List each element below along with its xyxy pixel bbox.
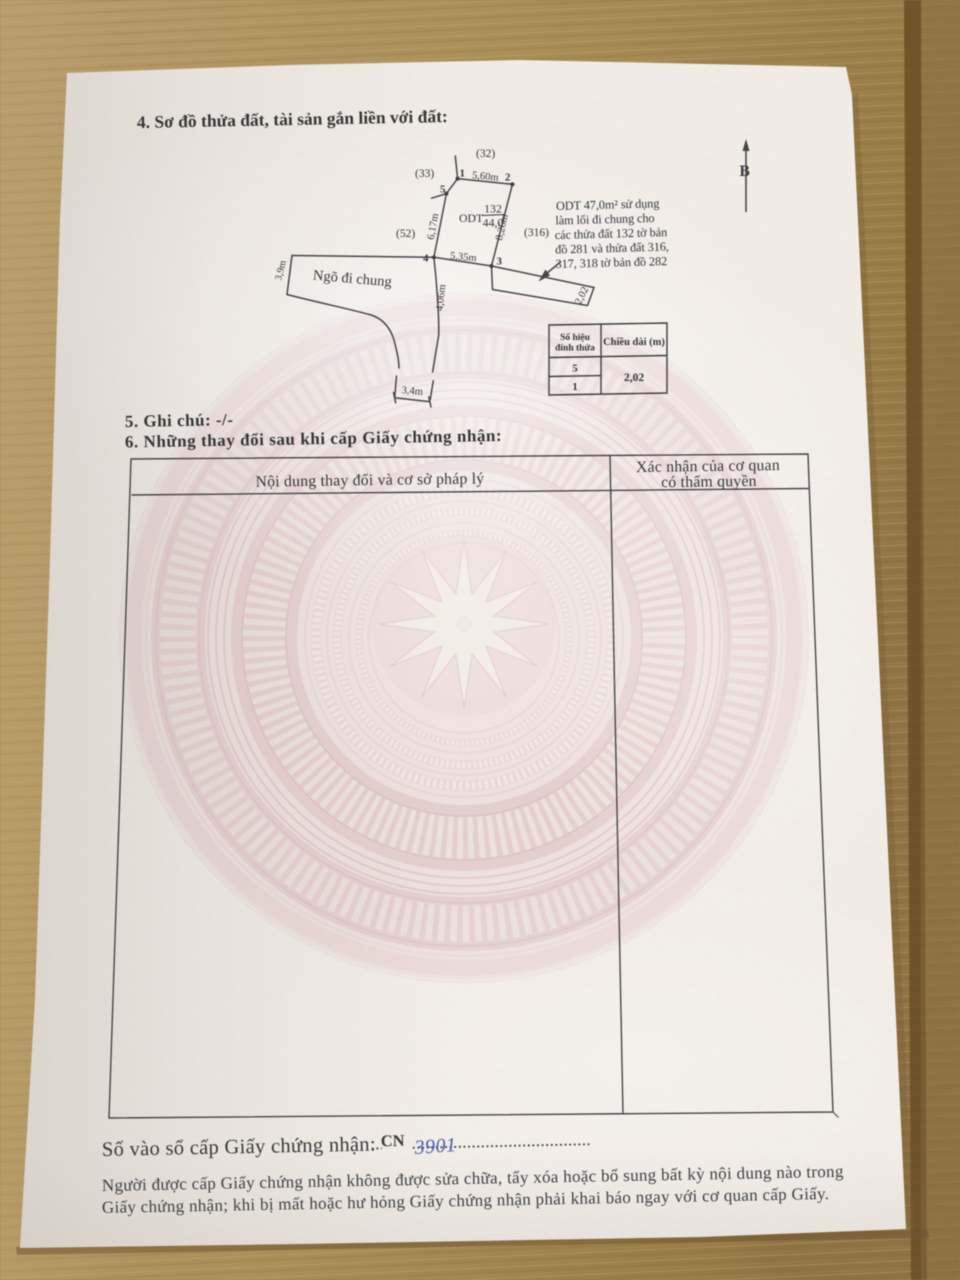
svg-text:1: 1 [460, 168, 466, 180]
svg-text:3: 3 [497, 256, 503, 268]
svg-text:ODT: ODT [459, 211, 484, 225]
svg-text:5. Ghi chú: -/-: 5. Ghi chú: -/- [125, 410, 234, 431]
svg-text:3,4m: 3,4m [401, 385, 423, 398]
svg-text:44,0: 44,0 [483, 216, 504, 230]
svg-text:có thẩm quyền: có thẩm quyền [661, 473, 757, 491]
svg-text:1: 1 [572, 381, 578, 393]
svg-text:(316): (316) [524, 227, 549, 239]
svg-text:2: 2 [505, 172, 511, 184]
svg-text:Nội dung thay đổi và cơ sở phá: Nội dung thay đổi và cơ sở pháp lý [255, 470, 484, 490]
svg-text:4: 4 [423, 253, 429, 265]
svg-text:(52): (52) [396, 228, 415, 240]
svg-text:317, 318 tờ bản đồ 282: 317, 318 tờ bản đồ 282 [555, 254, 667, 271]
svg-text:đỉnh thửa: đỉnh thửa [555, 344, 595, 354]
svg-text:(33): (33) [415, 168, 434, 180]
svg-text:5: 5 [440, 184, 446, 196]
svg-text:5: 5 [572, 363, 578, 375]
svg-text:3901: 3901 [413, 1134, 457, 1159]
svg-text:(32): (32) [476, 148, 495, 160]
svg-text:132: 132 [484, 202, 502, 216]
svg-text:B: B [740, 163, 750, 180]
svg-text:2,02: 2,02 [624, 372, 644, 384]
svg-text:Số hiệu: Số hiệu [560, 332, 591, 343]
svg-text:CN: CN [381, 1131, 405, 1150]
svg-text:Chiều dài (m): Chiều dài (m) [603, 337, 665, 348]
